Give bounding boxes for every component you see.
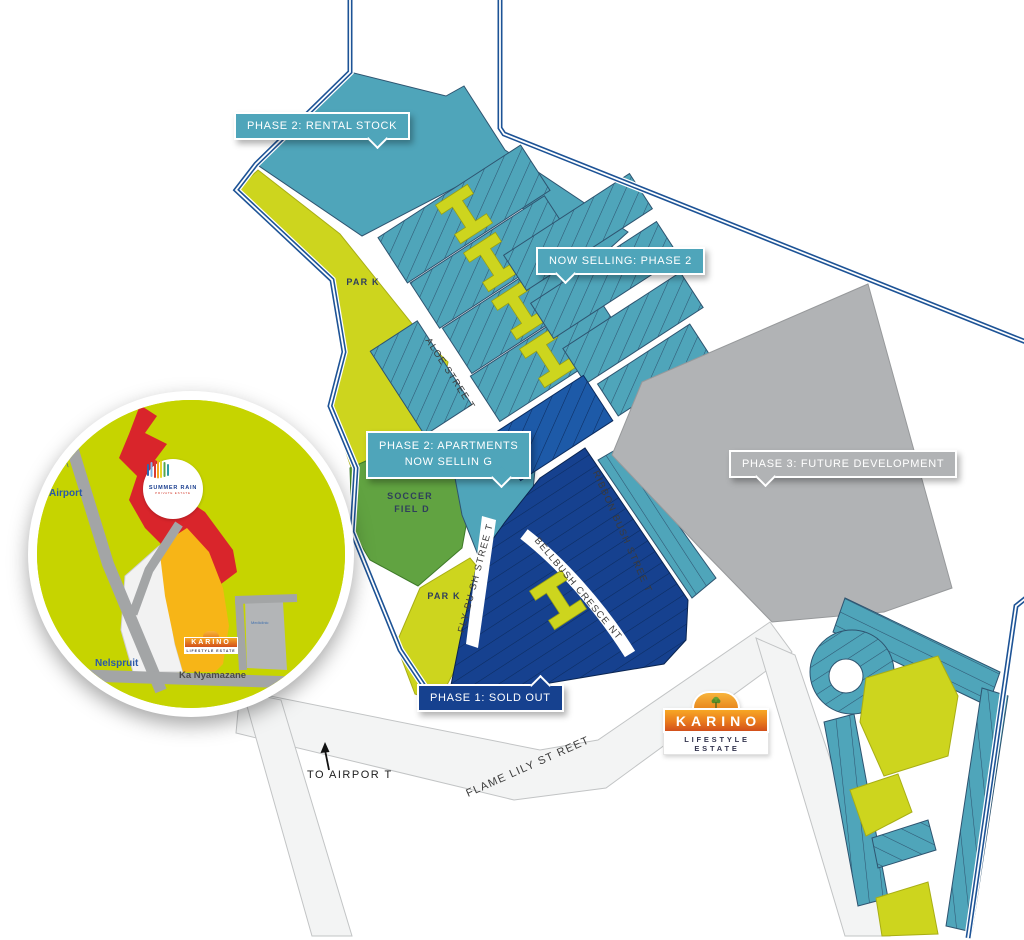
inset-gray-block (245, 600, 287, 670)
inset-mediclinic-label: Mediclinic (251, 620, 269, 625)
callout-phase2-apartments: PHASE 2: APARTMENTS NOW SELLIN G (366, 431, 531, 479)
karino-logo-arch (692, 691, 740, 708)
callout-phase3: PHASE 3: FUTURE DEVELOPMENT (729, 450, 957, 478)
callout-phase1-label: PHASE 1: SOLD OUT (430, 692, 551, 704)
karino-logo-mini: KARINO LIFESTYLE ESTATE (184, 631, 238, 654)
inset-airport-label: Airport (49, 488, 82, 499)
park-south-label: PAR K (427, 591, 460, 601)
park-north-label: PAR K (346, 277, 379, 287)
soccer-field-label-line2: FIEL D (394, 504, 430, 514)
nelspruit-arrow-icon: ← (71, 654, 85, 670)
callout-now-selling: NOW SELLING: PHASE 2 (536, 247, 705, 275)
inset-ka-nyamazane-label: Ka Nyamazane (179, 670, 246, 681)
soccer-field-label-line1: SOCCER (387, 491, 433, 501)
locality-inset-map: SUMMER RAIN PRIVATE ESTATE ↑ Airport ← N… (28, 391, 354, 717)
karino-logo-name: KARINO (663, 708, 769, 733)
karino-mini-name: KARINO (184, 637, 238, 648)
to-airport-label: TO AIRPOR T (307, 769, 393, 781)
summer-rain-logo: SUMMER RAIN PRIVATE ESTATE (143, 459, 203, 519)
callout-phase3-label: PHASE 3: FUTURE DEVELOPMENT (742, 458, 944, 470)
callout-apartments-line2: NOW SELLIN G (379, 455, 518, 471)
tree-icon (710, 696, 722, 708)
callout-now-selling-label: NOW SELLING: PHASE 2 (549, 255, 692, 267)
callout-apartments-line1: PHASE 2: APARTMENTS (379, 439, 518, 455)
inset-nelspruit-label: Nelspruit (95, 658, 138, 669)
summer-rain-tagline: PRIVATE ESTATE (155, 491, 191, 495)
karino-logo-tagline: LIFESTYLE ESTATE (663, 733, 769, 755)
summer-rain-bars-icon (143, 459, 173, 479)
karino-mini-tagline: LIFESTYLE ESTATE (184, 648, 238, 654)
estate-map: PHASE 2: RENTAL STOCK NOW SELLING: PHASE… (0, 0, 1024, 940)
callout-phase2-rental: PHASE 2: RENTAL STOCK (234, 112, 410, 140)
karino-logo: KARINO LIFESTYLE ESTATE (663, 691, 769, 755)
callout-phase1: PHASE 1: SOLD OUT (417, 684, 564, 712)
callout-phase2-rental-label: PHASE 2: RENTAL STOCK (247, 120, 397, 132)
